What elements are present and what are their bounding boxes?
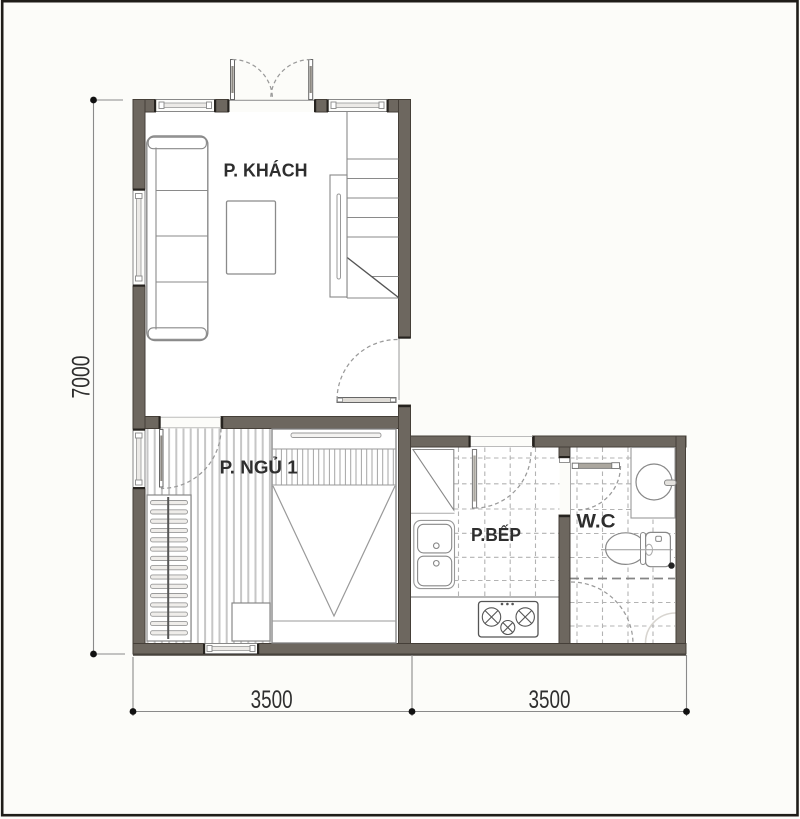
svg-text:7000: 7000 — [68, 356, 96, 399]
svg-text:P.BẾP: P.BẾP — [471, 524, 521, 545]
svg-text:3500: 3500 — [529, 686, 571, 714]
svg-text:P. KHÁCH: P. KHÁCH — [224, 160, 308, 181]
svg-text:P. NGỦ 1: P. NGỦ 1 — [220, 457, 298, 478]
svg-text:3500: 3500 — [251, 686, 293, 714]
svg-text:W.C: W.C — [577, 511, 616, 533]
